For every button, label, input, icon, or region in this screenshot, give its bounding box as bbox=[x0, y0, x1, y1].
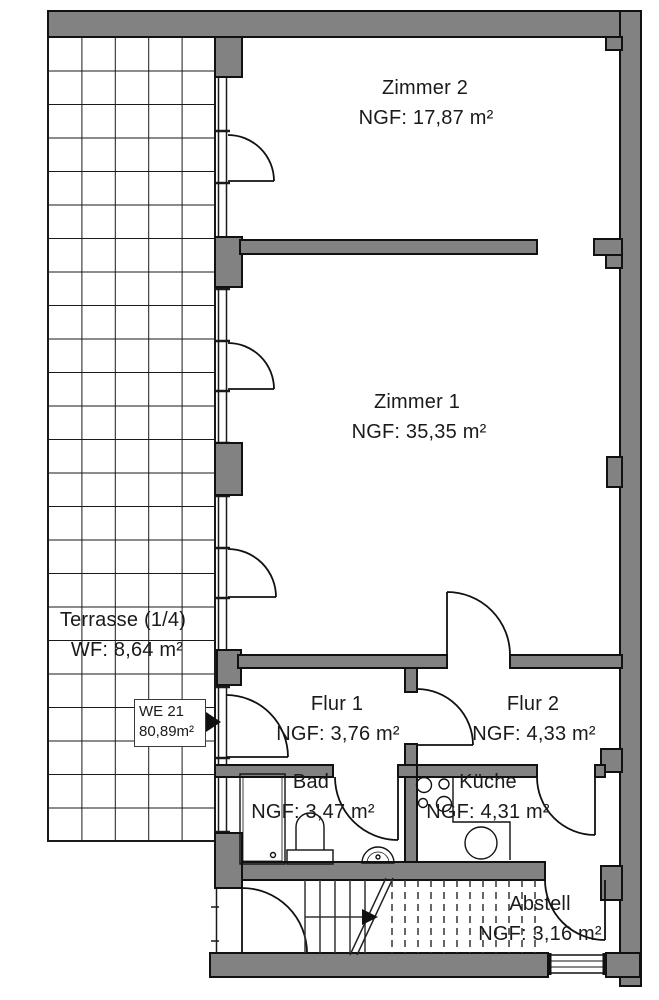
door-zimmer1-flur2 bbox=[447, 592, 510, 655]
wall-bad-kueche-divider bbox=[405, 744, 417, 864]
window-frame bbox=[548, 955, 606, 973]
wall-zimmer1-flur-left bbox=[238, 655, 447, 668]
wall-right-pier-zimmer1 bbox=[607, 457, 622, 487]
bad-sink-drain-icon bbox=[376, 855, 380, 859]
window-wall-pier-3 bbox=[215, 443, 242, 495]
unit-area: 80,89m² bbox=[139, 722, 205, 742]
wall-right-pier-zimmer bbox=[594, 239, 622, 255]
room-label-terrasse-name: Terrasse (1/4) bbox=[60, 610, 186, 630]
room-label-kueche-name: Küche bbox=[459, 772, 517, 792]
wall-right-notch-top bbox=[606, 37, 622, 50]
wall-right bbox=[620, 11, 641, 986]
room-label-bad-area: NGF: 3,47 m² bbox=[251, 802, 375, 822]
exit-door-threshold bbox=[211, 888, 219, 953]
door-zimmer1-terrace-upper bbox=[228, 343, 274, 389]
window-wall-pier-2 bbox=[215, 237, 242, 287]
room-label-terrasse-area: WF: 8,64 m² bbox=[71, 640, 183, 660]
wall-right-pier-zimmer-step bbox=[606, 255, 622, 268]
room-label-flur1-area: NGF: 3,76 m² bbox=[276, 724, 400, 744]
bottom-window bbox=[548, 953, 606, 975]
unit-label: WE 21 bbox=[139, 702, 205, 722]
shower-drain-icon bbox=[271, 853, 276, 858]
stove-burner-2 bbox=[439, 779, 449, 789]
room-label-flur1-name: Flur 1 bbox=[311, 694, 363, 714]
room-label-zimmer2-name: Zimmer 2 bbox=[382, 78, 468, 98]
wall-bottom-left bbox=[210, 953, 548, 977]
room-label-zimmer1-name: Zimmer 1 bbox=[374, 392, 460, 412]
floor-plan: Zimmer 2 NGF: 17,87 m² Zimmer 1 NGF: 35,… bbox=[0, 0, 659, 1000]
room-label-abstell-area: NGF: 3,16 m² bbox=[478, 924, 602, 944]
wall-top bbox=[48, 11, 640, 37]
door-flur1-flur2 bbox=[417, 689, 473, 745]
door-exit-bottom-left bbox=[242, 888, 307, 953]
door-zimmer1-terrace-lower bbox=[228, 549, 276, 597]
wall-flur-divider-stub bbox=[405, 668, 417, 692]
window-wall-pier-5 bbox=[215, 833, 242, 888]
room-label-abstell-name: Abstell bbox=[509, 894, 570, 914]
kitchen-sink bbox=[465, 827, 497, 859]
room-label-bad-name: Bad bbox=[293, 772, 329, 792]
room-label-zimmer1-area: NGF: 35,35 m² bbox=[352, 422, 487, 442]
stove-burner-1 bbox=[417, 778, 432, 793]
wall-zimmer1-flur-right bbox=[510, 655, 622, 668]
floor-plan-drawing bbox=[0, 0, 659, 1000]
wall-bad-kueche-stairs bbox=[242, 862, 545, 880]
wall-bottom-right bbox=[606, 953, 640, 977]
unit-info-box: WE 21 80,89m² bbox=[134, 699, 206, 747]
wall-zimmer2-zimmer1 bbox=[240, 240, 537, 254]
wall-bad-door-jamb bbox=[398, 765, 417, 777]
window-wall-pier-1 bbox=[215, 37, 242, 77]
room-label-kueche-area: NGF: 4,31 m² bbox=[426, 802, 550, 822]
door-zimmer2-terrace bbox=[228, 135, 274, 181]
room-label-zimmer2-area: NGF: 17,87 m² bbox=[359, 108, 494, 128]
room-label-flur2-area: NGF: 4,33 m² bbox=[472, 724, 596, 744]
wall-kueche-door-jamb bbox=[595, 765, 605, 777]
room-label-flur2-name: Flur 2 bbox=[507, 694, 559, 714]
